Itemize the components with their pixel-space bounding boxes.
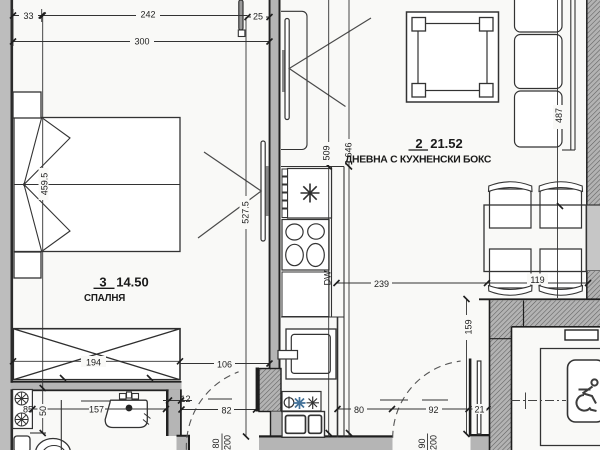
svg-text:25: 25 (253, 12, 263, 22)
svg-text:80: 80 (211, 438, 221, 448)
svg-text:14.50: 14.50 (116, 274, 149, 289)
svg-text:92: 92 (428, 405, 438, 415)
svg-text:2: 2 (415, 136, 422, 151)
svg-text:200: 200 (429, 435, 439, 450)
svg-text:527.5: 527.5 (241, 201, 251, 224)
svg-text:157: 157 (89, 405, 104, 415)
svg-text:300: 300 (134, 37, 149, 47)
svg-text:242: 242 (140, 10, 155, 20)
svg-text:487: 487 (554, 108, 564, 123)
svg-text:СПАЛНЯ: СПАЛНЯ (84, 293, 125, 304)
svg-text:239: 239 (374, 279, 389, 289)
svg-text:3: 3 (99, 274, 106, 289)
svg-text:33: 33 (23, 11, 33, 21)
svg-text:21.52: 21.52 (430, 136, 463, 151)
svg-text:21: 21 (474, 405, 484, 415)
svg-text:119: 119 (530, 275, 544, 285)
svg-text:90: 90 (417, 438, 427, 448)
svg-text:459.5: 459.5 (40, 173, 50, 196)
svg-text:82: 82 (221, 406, 231, 416)
svg-text:509: 509 (322, 145, 332, 160)
svg-text:80: 80 (354, 405, 364, 415)
svg-text:DW: DW (323, 270, 333, 285)
svg-text:159: 159 (464, 319, 474, 334)
svg-text:106: 106 (217, 360, 232, 370)
svg-text:85: 85 (23, 405, 33, 415)
svg-text:ДНЕВНА С КУХНЕНСКИ БОКС: ДНЕВНА С КУХНЕНСКИ БОКС (345, 155, 492, 166)
svg-text:194: 194 (86, 358, 101, 368)
svg-text:50: 50 (38, 406, 48, 416)
svg-text:200: 200 (223, 435, 233, 450)
